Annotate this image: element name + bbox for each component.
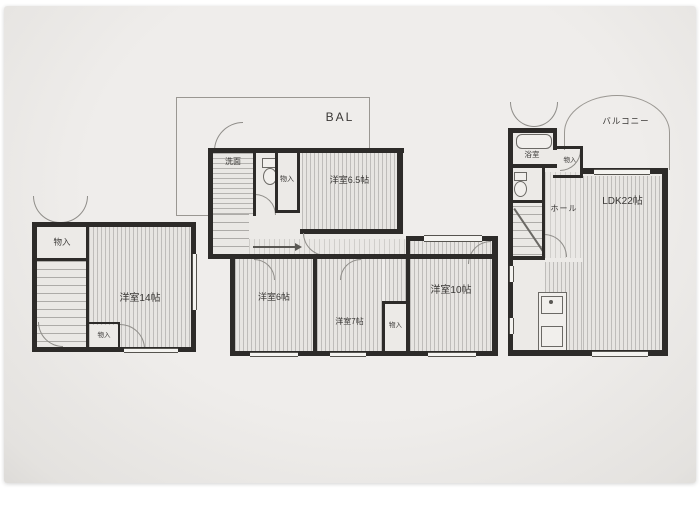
wall-segment — [508, 128, 557, 133]
bath-label: 浴室 — [510, 149, 554, 160]
window-icon — [509, 318, 514, 334]
window-icon — [330, 352, 366, 357]
faucet-icon — [549, 300, 553, 304]
wall-segment — [313, 258, 317, 355]
door-arc-icon — [33, 196, 60, 223]
center-closet-lower-label: 物入 — [382, 320, 409, 332]
wall-segment — [406, 236, 410, 356]
room-7-label: 洋室7帖 — [317, 316, 382, 328]
washroom-label: 洗面 — [213, 156, 253, 168]
wall-segment — [297, 151, 300, 213]
window-icon — [124, 348, 178, 353]
wall-segment — [86, 258, 89, 348]
wall-segment — [508, 200, 542, 203]
window-icon — [250, 352, 298, 357]
wall-segment — [230, 254, 235, 356]
wall-segment — [118, 322, 120, 348]
room-6-5-floor — [302, 153, 397, 229]
wall-segment — [32, 222, 196, 227]
window-icon — [424, 235, 482, 242]
window-icon — [594, 169, 650, 175]
screenshot-root: BAL バルコニー 物入 洋室14帖 物入 洗面 — [0, 0, 700, 525]
wall-segment — [253, 152, 256, 216]
door-arc-icon — [534, 102, 558, 127]
wall-segment — [382, 301, 385, 354]
toilet-tank-icon — [514, 172, 527, 181]
ldk-label: LDK22帖 — [583, 195, 662, 209]
bal-label: BAL — [300, 110, 380, 124]
wall-segment — [508, 256, 545, 260]
wall-segment — [397, 148, 403, 234]
wall-segment — [86, 226, 89, 261]
wall-segment — [32, 222, 37, 352]
window-icon — [509, 266, 514, 282]
center-stairs — [213, 214, 249, 254]
wall-segment — [382, 301, 409, 304]
room-14-label: 洋室14帖 — [95, 292, 185, 306]
wall-segment — [275, 210, 300, 213]
wall-segment — [208, 148, 213, 258]
door-arc-icon — [61, 196, 88, 223]
room-7-alcove-floor — [385, 259, 406, 301]
floorplan: BAL バルコニー 物入 洋室14帖 物入 洗面 — [0, 0, 700, 525]
wall-segment — [89, 322, 119, 324]
stair-direction-arrow — [253, 246, 295, 248]
toilet-icon — [514, 181, 527, 197]
left-closet-top-label: 物入 — [37, 230, 87, 254]
window-icon — [592, 351, 648, 357]
room-6-5-label: 洋室6.5帖 — [302, 174, 397, 187]
hall-label: ホール — [543, 203, 585, 215]
room-6-label: 洋室6帖 — [235, 291, 313, 304]
wall-segment — [275, 151, 278, 213]
wall-segment — [37, 258, 89, 261]
window-icon — [428, 352, 476, 357]
stove-icon — [541, 326, 563, 347]
wall-segment — [553, 146, 583, 149]
kitchen-sink-icon — [541, 296, 563, 314]
bathtub-icon — [516, 134, 552, 149]
wall-segment — [508, 164, 557, 168]
wall-segment — [553, 175, 583, 178]
wall-segment — [492, 236, 498, 356]
door-arc-icon — [510, 102, 534, 127]
stair-direction-arrow-head — [295, 243, 302, 251]
wall-segment — [208, 148, 404, 153]
wall-segment — [542, 168, 545, 258]
left-closet-bottom-label: 物入 — [90, 328, 118, 344]
wall-segment — [662, 168, 668, 356]
balcony-label: バルコニー — [586, 116, 666, 127]
wall-segment — [230, 254, 498, 259]
room-10-label: 洋室10帖 — [410, 284, 492, 298]
window-icon — [192, 254, 197, 310]
